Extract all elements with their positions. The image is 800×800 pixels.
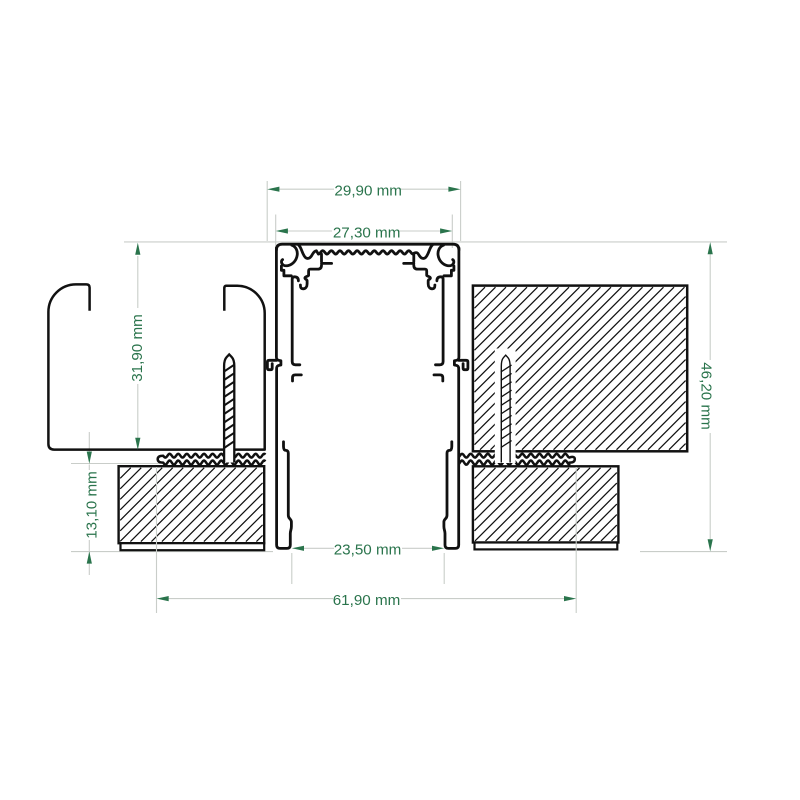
svg-text:61,90 mm: 61,90 mm — [333, 592, 401, 609]
svg-text:29,90 mm: 29,90 mm — [334, 183, 402, 200]
svg-text:27,30 mm: 27,30 mm — [333, 224, 401, 241]
svg-text:23,50 mm: 23,50 mm — [334, 542, 402, 559]
svg-text:13,10 mm: 13,10 mm — [83, 471, 100, 539]
svg-text:31,90 mm: 31,90 mm — [129, 314, 146, 382]
svg-text:46,20 mm: 46,20 mm — [698, 362, 715, 430]
